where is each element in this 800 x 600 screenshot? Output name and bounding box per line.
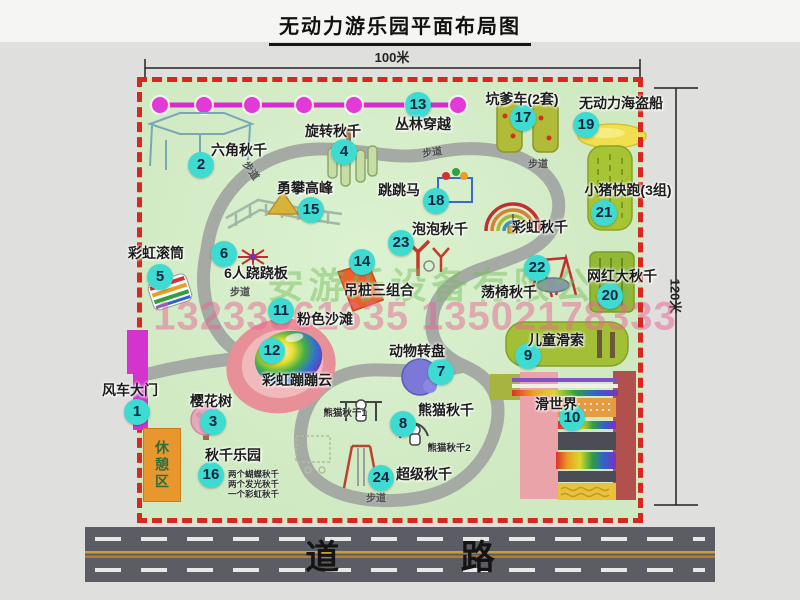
attraction-badge-3: 3	[200, 409, 226, 435]
attraction-label-11: 粉色沙滩	[297, 309, 353, 329]
attraction-label-7: 动物转盘	[389, 341, 445, 361]
attraction-note: 一个彩虹秋千	[228, 488, 279, 500]
attraction-label-21: 小猪快跑(3组)	[584, 180, 671, 200]
rest-area: 休憩区	[143, 428, 181, 502]
attraction-badge-4: 4	[331, 139, 357, 165]
walkway-label: 步道	[230, 284, 250, 299]
attraction-label-3: 樱花树	[190, 391, 232, 411]
attraction-badge-1: 1	[124, 399, 150, 425]
attraction-badge-11: 11	[268, 298, 294, 324]
attraction-label-12: 彩虹蹦蹦云	[262, 370, 332, 390]
windmill-gate-icon	[127, 330, 148, 374]
attraction-label-6: 6人跷跷板	[224, 263, 288, 283]
attraction-badge-12: 12	[259, 338, 285, 364]
labels-layer: 休憩区 1风车大门2六角秋千3樱花树4旋转秋千5彩虹滚筒66人跷跷板7动物转盘8…	[0, 0, 800, 600]
small-label: 熊猫秋千2	[427, 440, 470, 454]
attraction-badge-21: 21	[591, 200, 617, 226]
attraction-label-18: 跳跳马	[378, 180, 420, 200]
attraction-label-20: 网红大秋千	[587, 266, 657, 286]
small-label: 熊猫秋千1	[323, 405, 366, 419]
attraction-label-15: 勇攀高峰	[277, 178, 333, 198]
attraction-badge-24: 24	[368, 465, 394, 491]
attraction-label-16: 秋千乐园	[205, 445, 261, 465]
attraction-badge-20: 20	[597, 283, 623, 309]
attraction-badge-18: 18	[423, 188, 449, 214]
attraction-label-14: 吊桩三组合	[344, 280, 414, 300]
attraction-badge-22: 22	[524, 255, 550, 281]
attraction-label-5: 彩虹滚筒	[128, 243, 184, 263]
attraction-label-2: 六角秋千	[211, 140, 267, 160]
attraction-label-24: 超级秋千	[396, 464, 452, 484]
attraction-label: 彩虹秋千	[512, 217, 568, 237]
attraction-badge-14: 14	[349, 249, 375, 275]
attraction-label-10: 滑世界	[535, 394, 577, 414]
walkway-label: 步道	[240, 158, 264, 183]
attraction-badge-15: 15	[298, 197, 324, 223]
walkway-label: 步道	[528, 156, 548, 171]
attraction-label-13: 丛林穿越	[395, 114, 451, 134]
attraction-label-4: 旋转秋千	[305, 121, 361, 141]
attraction-label-9: 儿童滑索	[528, 330, 584, 350]
walkway-label: 步道	[421, 142, 443, 160]
attraction-label-8: 熊猫秋千	[418, 400, 474, 420]
attraction-label-19: 无动力海盗船	[579, 93, 663, 113]
attraction-label-22: 荡椅秋千	[481, 282, 537, 302]
attraction-badge-16: 16	[198, 462, 224, 488]
attraction-badge-8: 8	[390, 411, 416, 437]
attraction-label-23: 泡泡秋千	[412, 219, 468, 239]
walkway-label: 步道	[366, 490, 386, 505]
attraction-badge-5: 5	[147, 264, 173, 290]
attraction-badge-19: 19	[573, 112, 599, 138]
attraction-label-17: 坑爹车(2套)	[485, 89, 558, 109]
attraction-badge-23: 23	[388, 230, 414, 256]
attraction-badge-7: 7	[428, 359, 454, 385]
attraction-label-1: 风车大门	[102, 380, 158, 400]
